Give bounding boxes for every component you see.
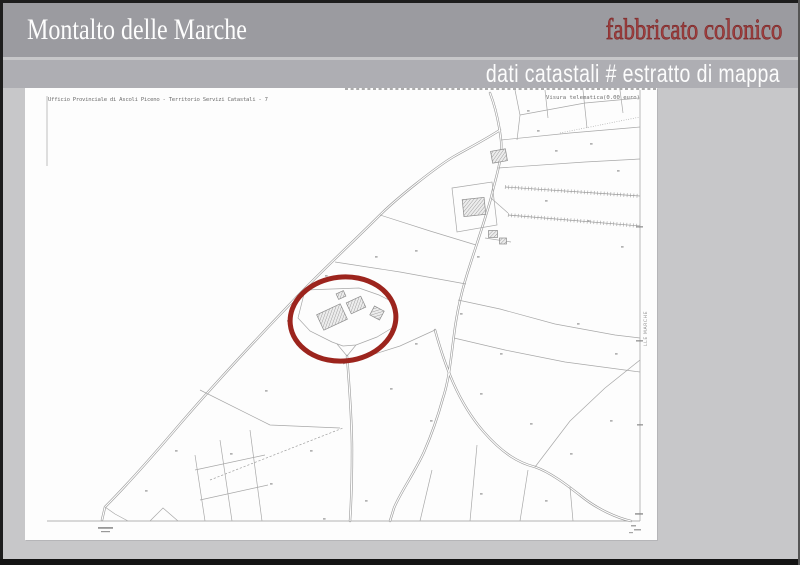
frame-border-bottom — [0, 559, 800, 565]
map-margin-label: LLE MARCHE — [643, 311, 649, 346]
subtitle-band: dati catastali # estratto di mappa — [3, 60, 798, 88]
road-main — [390, 93, 501, 521]
road-east-curve — [435, 330, 631, 521]
map-sheet: Ufficio Provinciale di Ascoli Piceno - T… — [25, 88, 657, 540]
margin-tick-marks — [629, 226, 643, 533]
parcel-number-marks — [145, 110, 624, 520]
embankment-lines — [505, 187, 640, 226]
property-title: fabbricato colonico — [605, 13, 782, 47]
building-main — [317, 304, 348, 330]
header-band: Montalto delle Marche fabbricato colonic… — [3, 3, 798, 57]
dashed-boundaries — [210, 117, 640, 480]
roads — [102, 93, 631, 521]
map-visura-caption: Visura telematica(0.00 euro) — [546, 95, 640, 101]
cadastral-map-svg: Ufficio Provinciale di Ascoli Piceno - T… — [25, 88, 657, 540]
scale-note-smudge — [98, 527, 113, 532]
road-diagonal — [102, 130, 500, 520]
municipality-title: Montalto delle Marche — [27, 13, 247, 47]
map-office-caption: Ufficio Provinciale di Ascoli Piceno - T… — [48, 97, 268, 103]
page-subtitle: dati catastali # estratto di mappa — [486, 60, 780, 89]
parcel-lines — [105, 90, 640, 521]
building-annex — [346, 296, 366, 314]
